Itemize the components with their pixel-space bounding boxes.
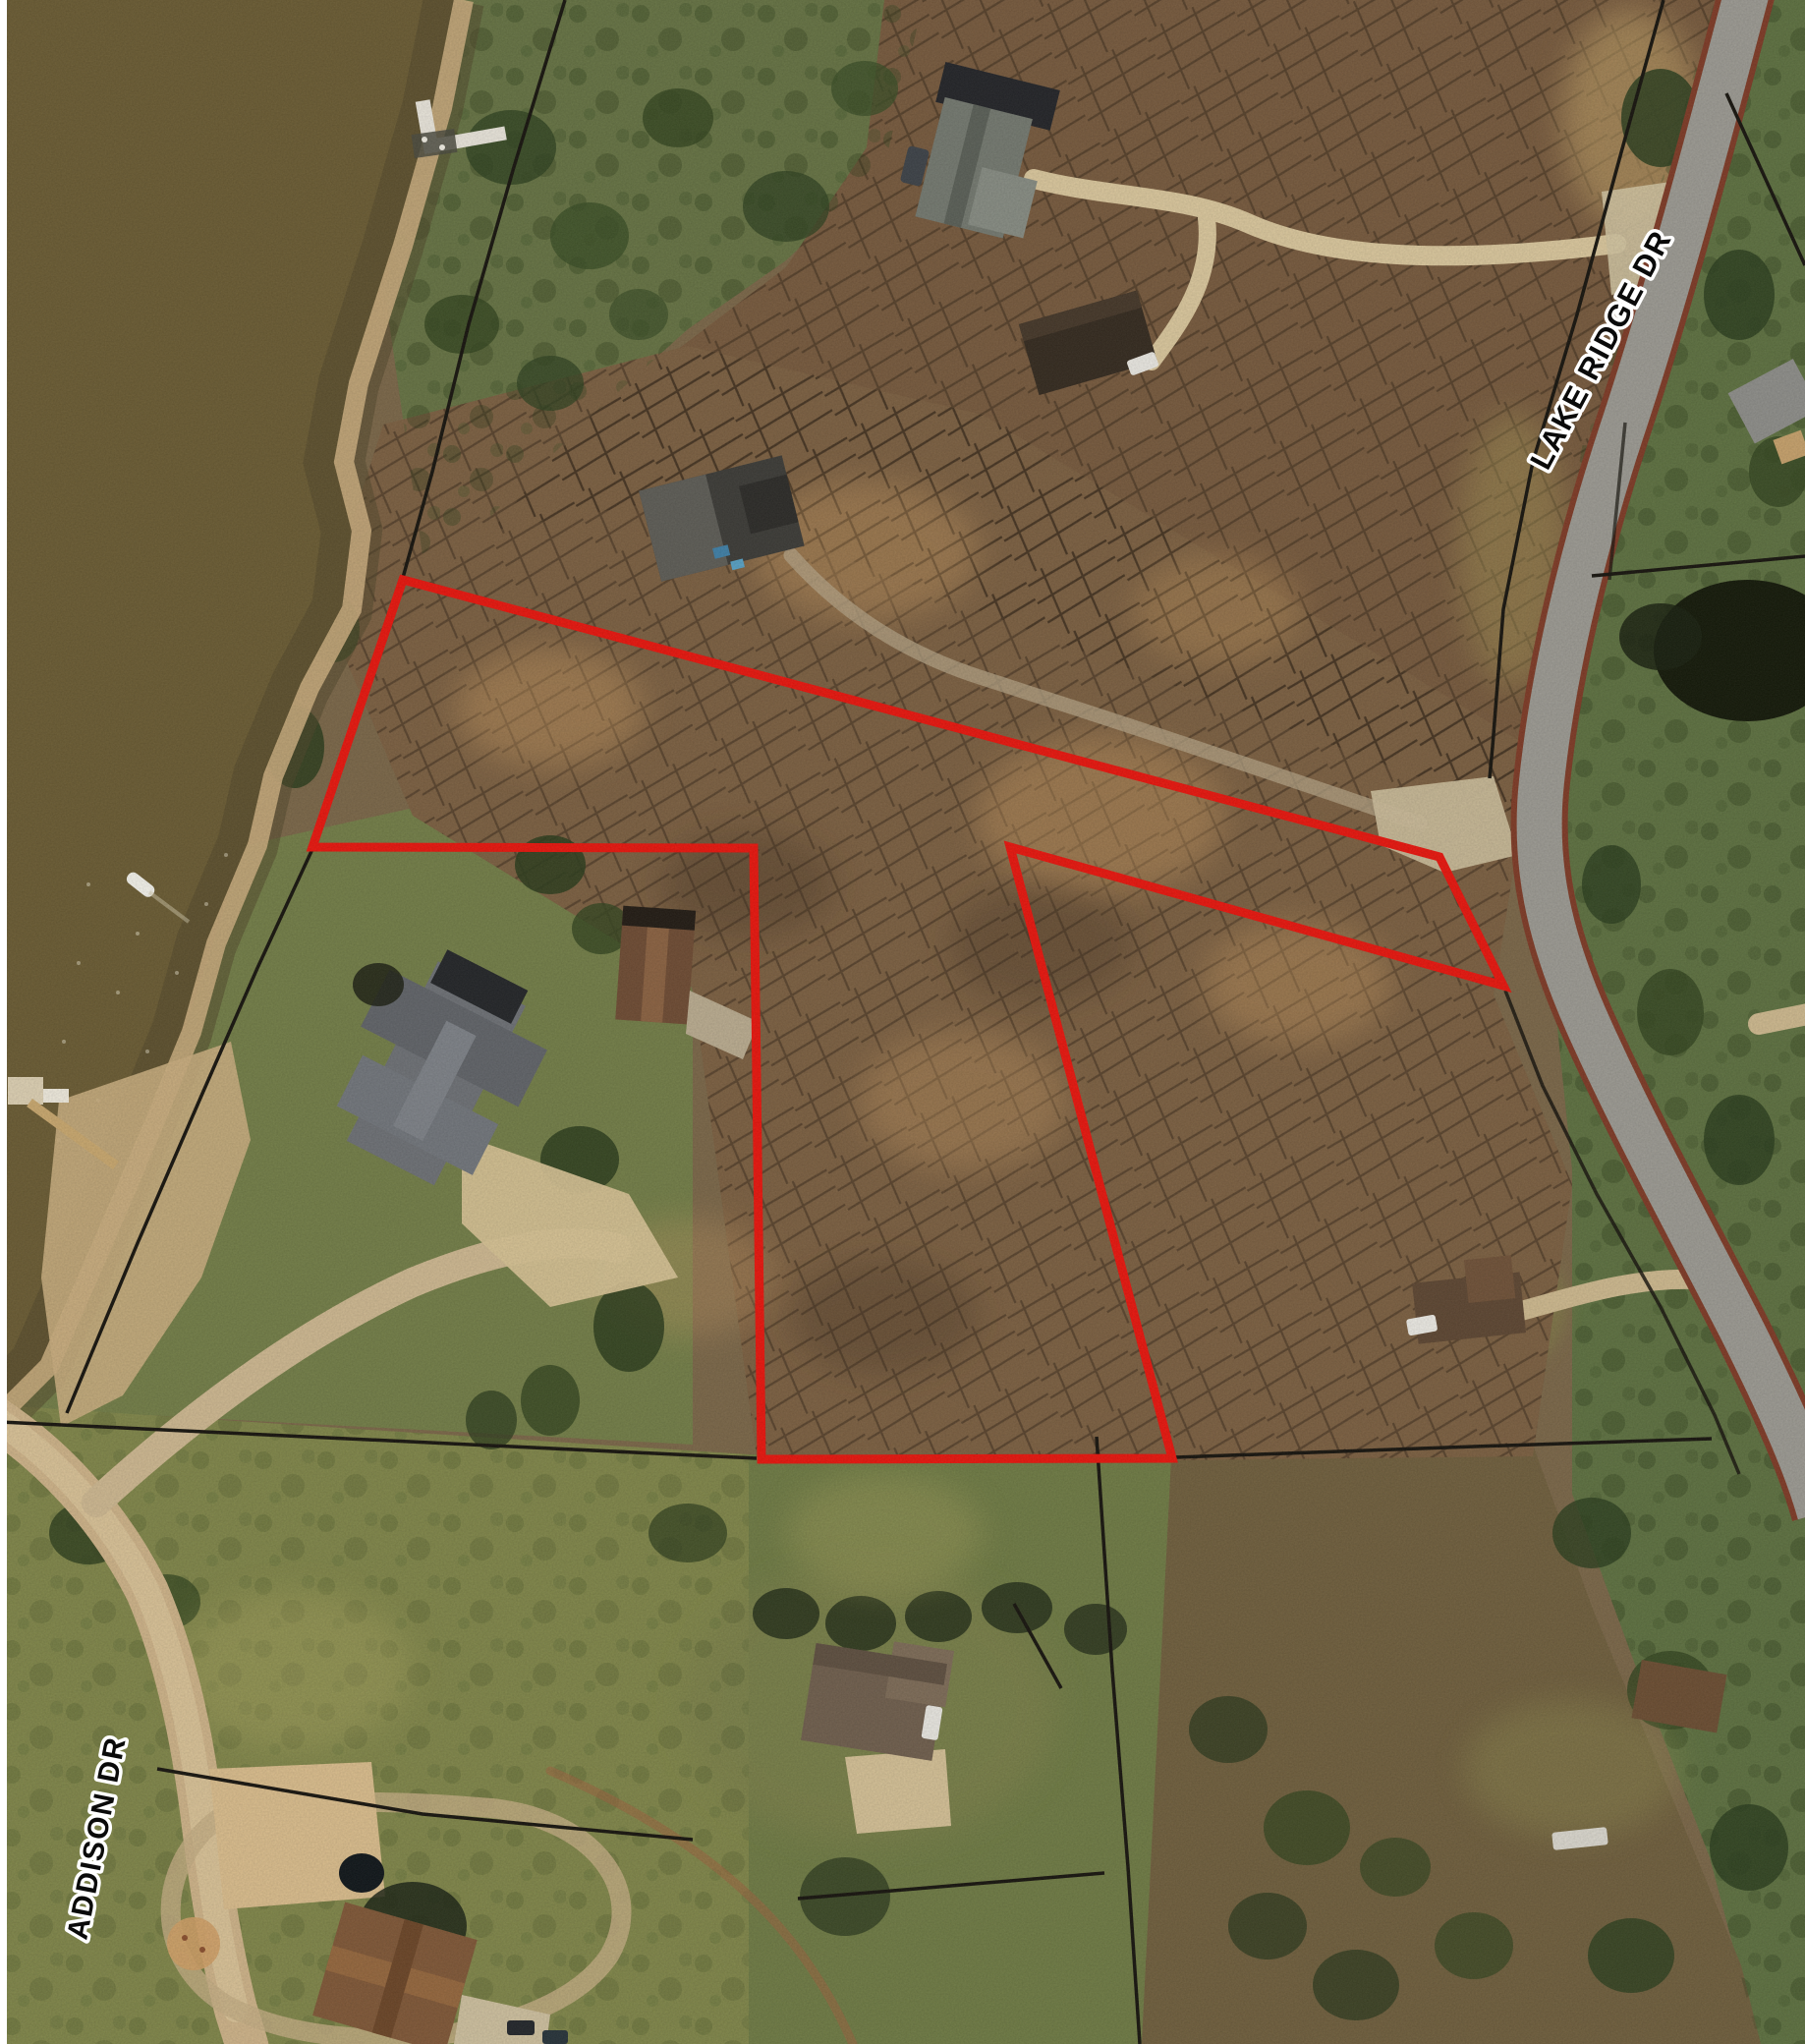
photo-grain-light [0,0,1805,2044]
scan-margin-left [0,0,7,2044]
aerial-map-canvas: LAKE RIDGE DR ADDISON DR [0,0,1805,2044]
aerial-map: LAKE RIDGE DR ADDISON DR [0,0,1805,2044]
